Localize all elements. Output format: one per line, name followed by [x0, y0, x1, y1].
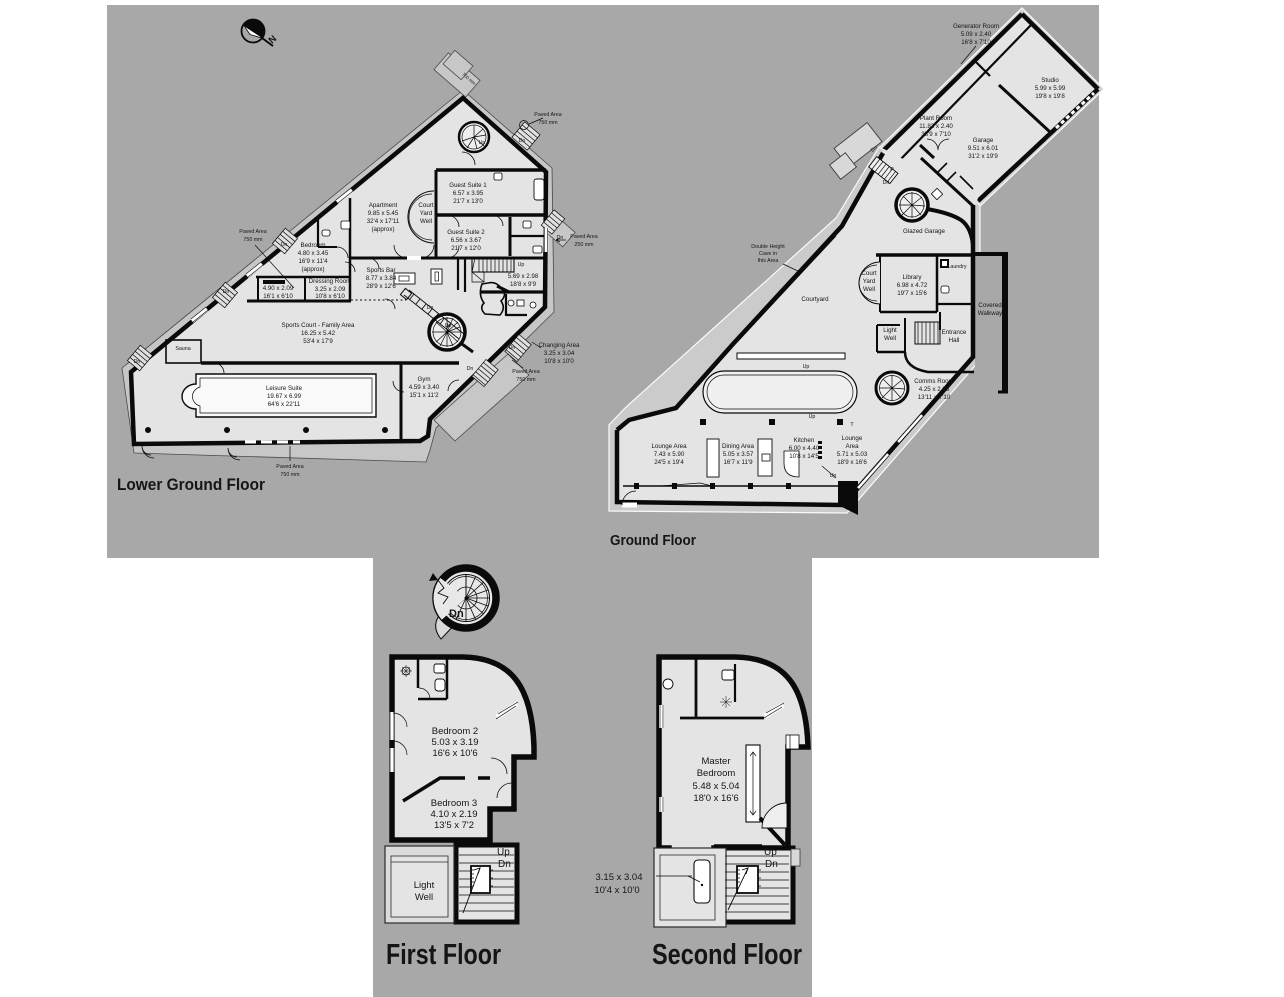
svg-text:53'4 x 17'9: 53'4 x 17'9: [303, 338, 333, 345]
svg-text:Up: Up: [518, 262, 525, 268]
svg-text:16'9 x 11'4: 16'9 x 11'4: [298, 258, 328, 265]
svg-text:Paved Area: Paved Area: [512, 369, 539, 375]
svg-text:13'5 x 7'2: 13'5 x 7'2: [434, 820, 474, 831]
svg-text:Changing Area: Changing Area: [539, 342, 580, 349]
svg-text:4.90 x 2.09: 4.90 x 2.09: [263, 285, 294, 292]
svg-text:Dn: Dn: [134, 359, 141, 365]
svg-text:6.57 x 3.95: 6.57 x 3.95: [453, 190, 484, 197]
svg-text:Dn: Dn: [557, 235, 564, 241]
svg-text:Second Floor: Second Floor: [652, 939, 802, 971]
svg-text:Bedroom: Bedroom: [300, 242, 325, 249]
svg-text:750 mm: 750 mm: [280, 472, 300, 478]
svg-text:Dn: Dn: [883, 180, 890, 186]
svg-text:Studio: Studio: [1041, 77, 1059, 84]
svg-text:Lounge Area: Lounge Area: [651, 443, 687, 450]
svg-text:Apartment: Apartment: [369, 202, 398, 209]
svg-text:38'9 x 7'10: 38'9 x 7'10: [921, 131, 951, 138]
svg-text:Comms Room: Comms Room: [914, 378, 954, 385]
svg-text:Sports Bar: Sports Bar: [366, 267, 395, 274]
svg-text:750 mm: 750 mm: [516, 377, 536, 383]
svg-text:Kitchen: Kitchen: [794, 437, 815, 444]
svg-text:Up: Up: [445, 323, 452, 329]
svg-text:Up: Up: [809, 414, 816, 420]
svg-text:Light: Light: [883, 327, 897, 334]
svg-text:9.51 x 6.01: 9.51 x 6.01: [968, 145, 999, 152]
svg-text:Paved Area: Paved Area: [239, 229, 266, 235]
svg-text:Master: Master: [701, 756, 730, 767]
svg-text:4.10 x 2.19: 4.10 x 2.19: [430, 809, 477, 820]
svg-text:Laundry: Laundry: [947, 264, 966, 270]
svg-text:Dn: Dn: [765, 859, 778, 870]
svg-text:P: P: [890, 167, 894, 173]
svg-text:Dining Area: Dining Area: [722, 443, 755, 450]
svg-text:21'7 x 12'0: 21'7 x 12'0: [451, 245, 481, 252]
svg-text:Up: Up: [497, 847, 510, 858]
svg-text:21'7 x 13'0: 21'7 x 13'0: [453, 198, 483, 205]
svg-text:Walkway: Walkway: [978, 310, 1003, 317]
svg-text:6.00 x 4.40: 6.00 x 4.40: [789, 445, 820, 452]
svg-text:4.80 x 3.45: 4.80 x 3.45: [298, 250, 329, 257]
svg-text:5.71 x 5.03: 5.71 x 5.03: [837, 451, 868, 458]
svg-text:Dn: Dn: [509, 345, 516, 351]
svg-text:Cave in: Cave in: [759, 251, 777, 257]
svg-text:3.15 x 3.04: 3.15 x 3.04: [595, 872, 642, 883]
svg-text:Yard: Yard: [420, 210, 433, 217]
svg-text:Garage: Garage: [973, 137, 994, 144]
svg-text:Guest Suite 1: Guest Suite 1: [449, 182, 487, 189]
svg-text:16'1 x 6'10: 16'1 x 6'10: [263, 293, 293, 300]
svg-text:Lounge: Lounge: [842, 435, 863, 442]
svg-text:Leisure Suite: Leisure Suite: [266, 385, 303, 392]
svg-text:6.98 x 4.72: 6.98 x 4.72: [897, 282, 928, 289]
svg-text:Sauna: Sauna: [175, 346, 190, 352]
svg-text:Ground Floor: Ground Floor: [610, 533, 696, 549]
svg-text:Lower Ground Floor: Lower Ground Floor: [117, 475, 265, 494]
svg-text:9.85 x 5.45: 9.85 x 5.45: [368, 210, 399, 217]
svg-text:19'7 x 15'6: 19'7 x 15'6: [897, 290, 927, 297]
svg-text:Covered: Covered: [978, 302, 1002, 309]
svg-text:Paved Area: Paved Area: [276, 464, 303, 470]
svg-text:31'2 x 19'9: 31'2 x 19'9: [968, 153, 998, 160]
svg-text:Dressing Room: Dressing Room: [309, 278, 352, 285]
svg-text:Dn: Dn: [467, 366, 474, 372]
svg-text:Well: Well: [420, 218, 432, 225]
svg-text:Paved Area: Paved Area: [534, 112, 561, 118]
svg-text:Area: Area: [845, 443, 859, 450]
svg-text:Sports Court - Family Area: Sports Court - Family Area: [282, 322, 355, 329]
svg-text:7.43 x 5.90: 7.43 x 5.90: [654, 451, 685, 458]
svg-text:28'9 x 12'6: 28'9 x 12'6: [366, 283, 396, 290]
svg-text:11.82 x 2.40: 11.82 x 2.40: [919, 123, 953, 130]
svg-text:Dn: Dn: [281, 242, 288, 248]
svg-text:18'9 x 16'6: 18'9 x 16'6: [837, 459, 867, 466]
svg-text:Up: Up: [803, 364, 810, 370]
svg-text:Well: Well: [884, 335, 896, 342]
svg-text:Dn: Dn: [498, 859, 511, 870]
svg-text:Gym: Gym: [417, 376, 430, 383]
svg-text:Dn: Dn: [449, 608, 464, 620]
svg-text:Double Height: Double Height: [751, 244, 785, 250]
svg-text:18'0 x 16'6: 18'0 x 16'6: [693, 793, 738, 804]
svg-text:Bedroom 3: Bedroom 3: [431, 798, 477, 809]
svg-text:Dn: Dn: [427, 305, 434, 311]
svg-text:Up: Up: [479, 140, 486, 146]
svg-text:5.69 x 2.98: 5.69 x 2.98: [508, 273, 539, 280]
svg-text:Light: Light: [414, 880, 435, 891]
svg-text:750 mm: 750 mm: [538, 120, 558, 126]
svg-text:5.48 x 5.04: 5.48 x 5.04: [692, 781, 739, 792]
svg-text:Dn: Dn: [519, 138, 526, 144]
svg-text:6.56 x 3.67: 6.56 x 3.67: [451, 237, 482, 244]
svg-text:19.67 x 6.99: 19.67 x 6.99: [267, 393, 302, 400]
svg-text:5.09 x 2.40: 5.09 x 2.40: [961, 31, 992, 38]
svg-text:32'4 x 17'11: 32'4 x 17'11: [367, 218, 400, 225]
svg-text:(approx): (approx): [371, 226, 394, 233]
svg-text:Entrance: Entrance: [942, 329, 967, 336]
svg-text:750 mm: 750 mm: [243, 237, 263, 243]
svg-text:First Floor: First Floor: [386, 939, 501, 971]
svg-text:Glazed Garage: Glazed Garage: [903, 228, 946, 235]
svg-text:Courtyard: Courtyard: [801, 296, 829, 303]
svg-text:Well: Well: [863, 286, 875, 293]
svg-text:Up: Up: [764, 847, 777, 858]
svg-text:this Area: this Area: [758, 258, 779, 264]
svg-text:Guest Suite 2: Guest Suite 2: [447, 229, 485, 236]
svg-text:Library: Library: [903, 274, 923, 281]
svg-text:10'8 x 10'0: 10'8 x 10'0: [544, 358, 574, 365]
svg-text:16.25 x 5.42: 16.25 x 5.42: [301, 330, 336, 337]
svg-text:Court: Court: [861, 270, 876, 277]
svg-text:4.59 x 3.40: 4.59 x 3.40: [409, 384, 440, 391]
svg-text:24'5 x 19'4: 24'5 x 19'4: [654, 459, 684, 466]
svg-text:Well: Well: [415, 892, 433, 903]
svg-text:5.99 x 5.99: 5.99 x 5.99: [1035, 85, 1066, 92]
svg-text:13'11 x 7'10: 13'11 x 7'10: [918, 394, 951, 401]
svg-text:Generator Room: Generator Room: [953, 23, 999, 30]
svg-text:16'8 x 7'10: 16'8 x 7'10: [961, 39, 991, 46]
svg-text:Court: Court: [418, 202, 433, 209]
svg-text:16'7 x 11'9: 16'7 x 11'9: [723, 459, 753, 466]
svg-text:5.05 x 3.57: 5.05 x 3.57: [723, 451, 754, 458]
svg-text:250 mm: 250 mm: [574, 242, 594, 248]
svg-text:Up: Up: [830, 473, 837, 479]
svg-text:10'8 x 14'5: 10'8 x 14'5: [789, 453, 819, 460]
svg-text:10'4 x 10'0: 10'4 x 10'0: [594, 885, 639, 896]
svg-text:Hall: Hall: [949, 337, 960, 344]
svg-text:Dn: Dn: [223, 289, 230, 295]
svg-text:Yard: Yard: [863, 278, 876, 285]
svg-text:4.25 x 2.38: 4.25 x 2.38: [919, 386, 950, 393]
svg-text:15'1 x 11'2: 15'1 x 11'2: [409, 392, 439, 399]
svg-text:Bedroom 2: Bedroom 2: [432, 726, 478, 737]
svg-text:Plant Room: Plant Room: [920, 115, 952, 122]
svg-text:16'6 x 10'6: 16'6 x 10'6: [432, 748, 477, 759]
svg-text:(approx): (approx): [301, 266, 324, 273]
svg-text:Bedroom: Bedroom: [697, 768, 736, 779]
svg-text:Paved Area: Paved Area: [570, 234, 597, 240]
svg-text:64'6 x 22'11: 64'6 x 22'11: [268, 401, 301, 408]
svg-text:10'8 x 6'10: 10'8 x 6'10: [315, 293, 345, 300]
svg-text:8.77 x 3.84: 8.77 x 3.84: [366, 275, 397, 282]
svg-text:18'8 x 9'9: 18'8 x 9'9: [510, 281, 537, 288]
svg-text:3.25 x 3.04: 3.25 x 3.04: [544, 350, 575, 357]
svg-text:19'8 x 19'8: 19'8 x 19'8: [1035, 93, 1065, 100]
svg-text:3.25 x 2.09: 3.25 x 2.09: [315, 286, 346, 293]
svg-text:5.03 x 3.19: 5.03 x 3.19: [431, 737, 478, 748]
